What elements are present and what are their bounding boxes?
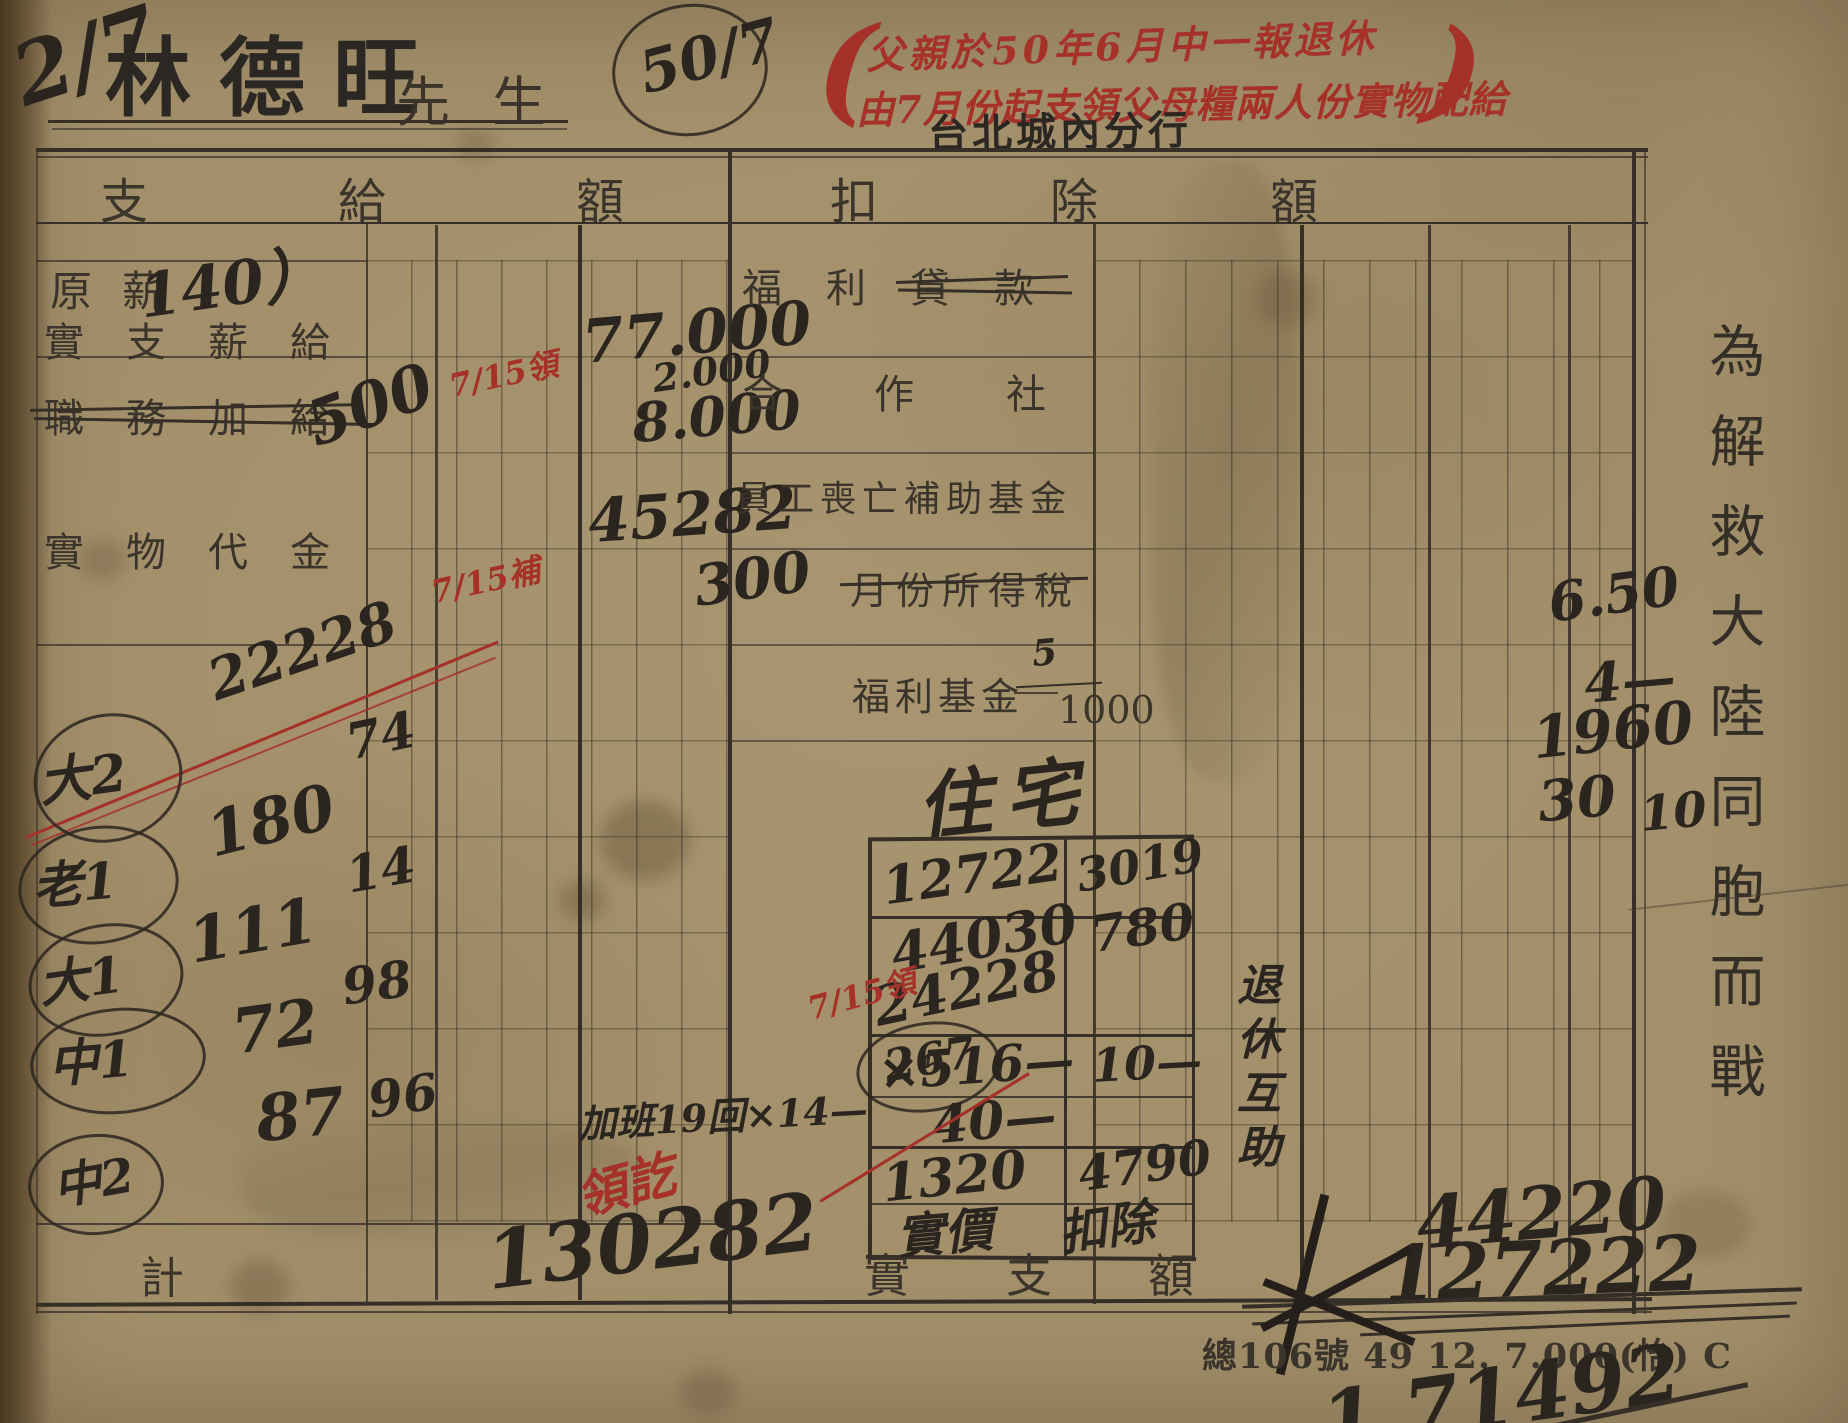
family-tag: 中1 bbox=[45, 1018, 136, 1097]
table-top-border-thin bbox=[36, 156, 1648, 158]
deduction-section-header: 扣除額 bbox=[830, 162, 1490, 232]
row-label-coop: 合作社 bbox=[742, 362, 1138, 420]
box-amount: 10— bbox=[1091, 1033, 1204, 1093]
family-amount: 87 bbox=[252, 1074, 348, 1158]
red-annotation-line1: 父親於50年6月中一報退休 bbox=[865, 7, 1378, 80]
welfare-rate-numerator: 5 bbox=[1030, 631, 1059, 675]
welfare-rate-denominator: 1000 bbox=[1058, 688, 1155, 732]
pay-section-header: 支給額 bbox=[100, 162, 814, 232]
welfare-fund-dash bbox=[1014, 692, 1058, 694]
family-amount: 96 bbox=[364, 1061, 441, 1129]
family-amount: 72 bbox=[227, 984, 323, 1068]
family-amount: 98 bbox=[338, 948, 415, 1016]
family-tag: 大2 bbox=[33, 730, 131, 817]
row-rule bbox=[730, 452, 1093, 454]
name-underline-2 bbox=[52, 128, 567, 130]
family-tag: 大1 bbox=[33, 934, 127, 1017]
scanned-payroll-card: 2/7 林德旺 先生 50/7 ( 父親於50年6月中一報退休 由7月份起支領父… bbox=[0, 0, 1848, 1423]
column-rule bbox=[1300, 225, 1304, 1300]
row-label-goods-allowance: 實物代金 bbox=[44, 520, 372, 578]
column-rule bbox=[435, 225, 438, 1300]
family-amount: 14 bbox=[341, 834, 420, 904]
honorific-label: 先生 bbox=[396, 58, 588, 137]
table-top-border bbox=[36, 148, 1648, 152]
row-label-welfare-loan: 福利貸款 bbox=[742, 256, 1078, 314]
row-label-death-fund: 員工喪亡補助基金 bbox=[736, 470, 1072, 522]
net-pay-label: 實支額 bbox=[864, 1240, 1290, 1306]
row-label-income-tax: 月份所得稅 bbox=[850, 560, 1080, 615]
row-label-actual-salary: 實支薪給 bbox=[44, 310, 372, 368]
net-crossed-amount: 127222 bbox=[1383, 1218, 1703, 1318]
family-tag: 老1 bbox=[29, 840, 120, 919]
row-label-welfare-fund: 福利基金 bbox=[852, 666, 1024, 721]
family-amount: 111 bbox=[183, 883, 323, 977]
family-amount: 180 bbox=[199, 769, 342, 871]
pay-total-label: 計 bbox=[140, 1242, 184, 1306]
deduction-amount: 30 bbox=[1535, 763, 1618, 836]
stain bbox=[680, 1370, 736, 1414]
column-rule bbox=[1428, 225, 1431, 1300]
family-tag: 中2 bbox=[47, 1135, 139, 1218]
margin-slogan: 為解救大陸同胞而戰 bbox=[1692, 322, 1773, 1132]
table-left-border bbox=[36, 148, 38, 1314]
name-underline bbox=[48, 120, 568, 123]
retirement-aid-note: 退休互助 bbox=[1222, 962, 1286, 1178]
